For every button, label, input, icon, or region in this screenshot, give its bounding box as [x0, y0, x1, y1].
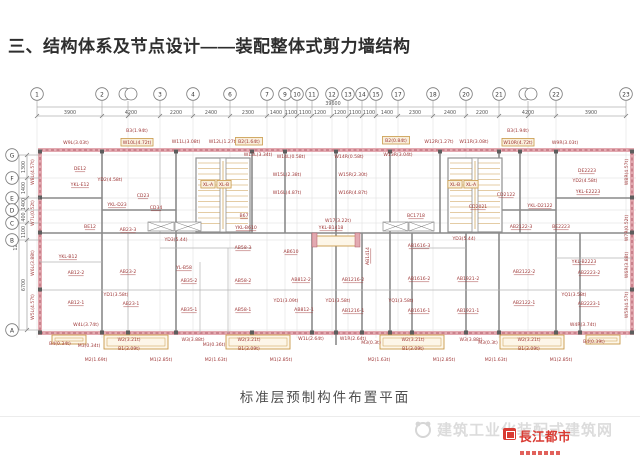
svg-text:W12L(1.27t): W12L(1.27t)	[209, 139, 238, 145]
svg-text:YD1(3.58t): YD1(3.58t)	[103, 292, 129, 298]
svg-text:2: 2	[100, 92, 104, 98]
svg-text:B3(1.94t): B3(1.94t)	[507, 128, 529, 134]
svg-text:W10R(4.72t): W10R(4.72t)	[503, 140, 532, 146]
svg-text:M2(1.69t): M2(1.69t)	[85, 357, 108, 363]
svg-text:W17(3.22t): W17(3.22t)	[325, 218, 351, 224]
svg-text:AB1616-1: AB1616-1	[408, 308, 431, 314]
svg-text:W11L(3.08t): W11L(3.08t)	[172, 139, 201, 145]
svg-text:2300: 2300	[242, 110, 254, 116]
svg-text:W3(3.88t): W3(3.88t)	[181, 337, 204, 343]
svg-text:M3(0.34t): M3(0.34t)	[78, 343, 101, 349]
svg-text:M2(1.63t): M2(1.63t)	[485, 357, 508, 363]
svg-text:W7L(0.52t): W7L(0.52t)	[30, 200, 36, 226]
svg-text:W2(3.21t): W2(3.21t)	[401, 337, 424, 343]
svg-text:DE2223: DE2223	[578, 168, 596, 174]
plan-caption: 标准层预制构件布置平面	[150, 386, 500, 406]
svg-text:AB2223-1: AB2223-1	[578, 301, 601, 307]
svg-text:W16L(4.87t): W16L(4.87t)	[273, 190, 302, 196]
svg-text:AB58-2: AB58-2	[235, 278, 252, 284]
svg-text:1100: 1100	[299, 110, 311, 116]
svg-text:AB1616-2: AB1616-2	[408, 276, 431, 282]
svg-text:AB812-2: AB812-2	[291, 277, 311, 283]
svg-text:12: 12	[328, 92, 336, 98]
svg-text:2400: 2400	[444, 110, 456, 116]
svg-text:YD3(5.44): YD3(5.44)	[451, 236, 475, 242]
svg-text:YKL-B1418: YKL-B1418	[318, 225, 344, 231]
svg-text:W9R(3.03t): W9R(3.03t)	[552, 140, 578, 146]
svg-text:M3(0.3t): M3(0.3t)	[361, 340, 381, 346]
svg-text:AB2122-3: AB2122-3	[510, 224, 533, 230]
svg-text:YD2(4.58t): YD2(4.58t)	[572, 178, 598, 184]
svg-text:W1L(2.64t): W1L(2.64t)	[298, 336, 324, 342]
svg-text:YQ1(3.58t): YQ1(3.58t)	[388, 298, 414, 304]
svg-text:YD2(4.58t): YD2(4.58t)	[97, 177, 123, 183]
svg-text:W13L(3.34t): W13L(3.34t)	[244, 152, 273, 158]
svg-text:BC1718: BC1718	[407, 213, 425, 219]
svg-text:3900: 3900	[585, 110, 597, 116]
svg-text:22: 22	[552, 92, 560, 98]
svg-text:M1(2.85t): M1(2.85t)	[550, 357, 573, 363]
svg-text:B4(0.39t): B4(0.39t)	[583, 339, 605, 345]
svg-text:CD23: CD23	[137, 193, 150, 199]
svg-text:W13R(3.04t): W13R(3.04t)	[383, 152, 412, 158]
svg-text:W12R(1.27t): W12R(1.27t)	[424, 139, 453, 145]
svg-text:CD2122: CD2122	[497, 192, 516, 198]
svg-text:1400: 1400	[21, 198, 27, 210]
svg-text:XL-A: XL-A	[466, 182, 477, 188]
svg-text:M3(0.36t): M3(0.36t)	[203, 342, 226, 348]
svg-text:3: 3	[158, 92, 162, 98]
svg-text:M1(2.85t): M1(2.85t)	[150, 357, 173, 363]
svg-text:1400: 1400	[21, 182, 27, 194]
svg-text:W11R(3.08t): W11R(3.08t)	[459, 139, 488, 145]
svg-text:10: 10	[293, 92, 301, 98]
svg-text:AB58-1: AB58-1	[235, 307, 252, 313]
svg-text:YKL-B610: YKL-B610	[234, 225, 257, 231]
svg-text:2300: 2300	[409, 110, 421, 116]
svg-text:DE12: DE12	[74, 166, 86, 172]
svg-text:BE2223: BE2223	[552, 224, 570, 230]
svg-text:W5L(4.57t): W5L(4.57t)	[30, 294, 36, 320]
svg-text:YKL-E2223: YKL-E2223	[575, 189, 601, 195]
svg-text:AB2223-2: AB2223-2	[578, 270, 601, 276]
svg-text:1100: 1100	[21, 226, 27, 238]
svg-text:W8L(4.57t): W8L(4.57t)	[30, 159, 36, 185]
svg-text:XL-A: XL-A	[203, 182, 214, 188]
svg-text:17: 17	[394, 92, 402, 98]
svg-text:39600: 39600	[325, 101, 340, 107]
svg-text:M1(2.85t): M1(2.85t)	[270, 357, 293, 363]
svg-text:YKL-B12: YKL-B12	[58, 254, 78, 260]
svg-text:AB812-1: AB812-1	[294, 307, 314, 313]
svg-text:AB35-2: AB35-2	[181, 278, 198, 284]
svg-text:A: A	[10, 328, 14, 334]
svg-text:2400: 2400	[205, 110, 217, 116]
svg-text:W16R(4.87t): W16R(4.87t)	[338, 190, 367, 196]
svg-text:YD3(5.44): YD3(5.44)	[163, 237, 187, 243]
plan-walls	[40, 150, 632, 345]
svg-text:14: 14	[358, 92, 366, 98]
svg-text:BE12: BE12	[84, 224, 96, 230]
svg-text:7: 7	[265, 92, 269, 98]
svg-text:4200: 4200	[125, 110, 137, 116]
svg-text:1100: 1100	[285, 110, 297, 116]
svg-text:B: B	[10, 238, 14, 244]
svg-text:G: G	[10, 153, 15, 159]
entrance-canopy	[316, 236, 356, 246]
svg-text:B4(0.34t): B4(0.34t)	[49, 341, 71, 347]
svg-text:D: D	[10, 208, 15, 214]
logo-mark-icon	[503, 428, 516, 440]
svg-text:W4R(3.74t): W4R(3.74t)	[570, 322, 596, 328]
svg-text:CD2021: CD2021	[469, 204, 488, 210]
svg-text:W2(3.21t): W2(3.21t)	[517, 337, 540, 343]
svg-text:4: 4	[191, 92, 195, 98]
svg-text:400: 400	[21, 212, 27, 221]
svg-text:B1(3.09t): B1(3.09t)	[238, 346, 260, 352]
svg-text:9: 9	[283, 92, 287, 98]
svg-text:AB1921-2: AB1921-2	[457, 276, 480, 282]
svg-text:XL-B: XL-B	[450, 182, 460, 188]
svg-text:YQ1(3.58t): YQ1(3.58t)	[561, 292, 587, 298]
svg-text:6: 6	[228, 92, 232, 98]
svg-text:AB610: AB610	[283, 249, 298, 255]
svg-text:2200: 2200	[476, 110, 488, 116]
svg-text:20: 20	[462, 92, 470, 98]
svg-text:AB1414: AB1414	[365, 247, 371, 265]
svg-text:13: 13	[344, 92, 352, 98]
svg-text:W6L(3.88t): W6L(3.88t)	[30, 250, 36, 276]
svg-text:AB1921-1: AB1921-1	[457, 308, 480, 314]
svg-text:3900: 3900	[64, 110, 76, 116]
svg-text:AB58-3: AB58-3	[235, 245, 252, 251]
svg-text:YL-B58: YL-B58	[175, 265, 192, 271]
svg-text:CD34: CD34	[150, 205, 163, 211]
footer-divider	[0, 416, 640, 417]
svg-text:AB23-1: AB23-1	[123, 301, 140, 307]
svg-text:AB35-1: AB35-1	[181, 307, 198, 313]
svg-text:B1(3.09t): B1(3.09t)	[402, 346, 424, 352]
svg-text:W2(3.21t): W2(3.21t)	[117, 337, 140, 343]
svg-text:1300: 1300	[21, 161, 27, 173]
svg-text:B3(1.94t): B3(1.94t)	[126, 128, 148, 134]
svg-text:M2(1.63t): M2(1.63t)	[205, 357, 228, 363]
svg-text:M1(2.85t): M1(2.85t)	[433, 357, 456, 363]
svg-text:AB12-2: AB12-2	[68, 270, 85, 276]
svg-text:1100: 1100	[349, 110, 361, 116]
logo-subtext-blocks	[520, 442, 590, 446]
svg-text:YKL-E12: YKL-E12	[70, 182, 90, 188]
svg-text:11: 11	[308, 92, 316, 98]
svg-text:W2(3.21t): W2(3.21t)	[237, 337, 260, 343]
svg-text:W7R(0.52t): W7R(0.52t)	[624, 215, 630, 241]
slide: 三、结构体系及节点设计——装配整体式剪力墙结构	[0, 0, 640, 453]
svg-text:21: 21	[495, 92, 503, 98]
svg-text:C: C	[10, 221, 14, 227]
svg-text:W8R(4.57t): W8R(4.57t)	[624, 159, 630, 185]
svg-text:23: 23	[622, 92, 630, 98]
svg-text:1400: 1400	[270, 110, 282, 116]
grid-bubbles: 1234679101112131415171820212223GFEDCBA	[6, 88, 633, 337]
svg-text:YKL-D2122: YKL-D2122	[526, 203, 552, 209]
svg-text:YKL-B2223: YKL-B2223	[571, 259, 597, 265]
svg-text:2200: 2200	[170, 110, 182, 116]
svg-text:YD1(3.58t): YD1(3.58t)	[325, 298, 351, 304]
svg-text:YKL-D23: YKL-D23	[106, 202, 126, 208]
svg-text:18: 18	[429, 92, 437, 98]
svg-text:W15R(2.30t): W15R(2.30t)	[338, 172, 367, 178]
svg-text:AB12-1: AB12-1	[68, 300, 85, 306]
svg-text:B1(3.09t): B1(3.09t)	[518, 346, 540, 352]
svg-text:W14L(0.58t): W14L(0.58t)	[277, 154, 306, 160]
svg-text:AB1216-2: AB1216-2	[342, 277, 365, 283]
svg-text:B2(1.64t): B2(1.64t)	[238, 139, 260, 145]
svg-text:W9L(3.03t): W9L(3.03t)	[63, 140, 89, 146]
svg-text:1100: 1100	[363, 110, 375, 116]
svg-text:B2(0.84t): B2(0.84t)	[385, 138, 407, 144]
svg-text:AB2122-1: AB2122-1	[513, 300, 536, 306]
svg-text:1: 1	[35, 92, 39, 98]
svg-text:B1(3.09t): B1(3.09t)	[118, 346, 140, 352]
svg-text:1400: 1400	[381, 110, 393, 116]
svg-text:E: E	[10, 196, 14, 202]
svg-text:AB1616-3: AB1616-3	[408, 243, 431, 249]
svg-text:W15L(2.38t): W15L(2.38t)	[273, 172, 302, 178]
panda-logo-icon	[412, 418, 434, 445]
svg-text:1200: 1200	[314, 110, 326, 116]
svg-text:4200: 4200	[522, 110, 534, 116]
svg-text:XL-B: XL-B	[219, 182, 229, 188]
svg-text:AB23-2: AB23-2	[120, 269, 137, 275]
svg-text:W10L(4.72t): W10L(4.72t)	[123, 140, 152, 146]
svg-text:B67: B67	[240, 213, 249, 219]
svg-text:M3(0.3t): M3(0.3t)	[478, 340, 498, 346]
svg-text:M2(1.63t): M2(1.63t)	[368, 357, 391, 363]
svg-text:6700: 6700	[21, 279, 27, 291]
svg-text:W14R(0.58t): W14R(0.58t)	[334, 154, 363, 160]
svg-text:YD1(3.09t): YD1(3.09t)	[273, 298, 299, 304]
svg-text:W4L(3.74t): W4L(3.74t)	[73, 322, 99, 328]
svg-text:1200: 1200	[334, 110, 346, 116]
svg-text:AB1216-1: AB1216-1	[342, 308, 365, 314]
svg-text:F: F	[10, 176, 13, 182]
svg-text:15: 15	[372, 92, 380, 98]
svg-text:W6R(3.88t): W6R(3.88t)	[624, 252, 630, 278]
svg-text:W5R(4.57t): W5R(4.57t)	[624, 292, 630, 318]
svg-text:AB23-3: AB23-3	[120, 227, 137, 233]
svg-text:AB2122-2: AB2122-2	[513, 269, 536, 275]
